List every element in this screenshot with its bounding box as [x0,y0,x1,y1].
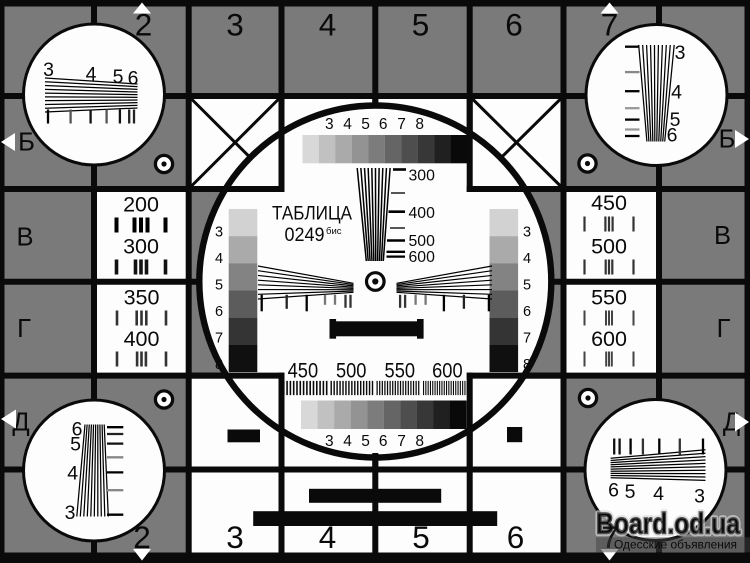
svg-text:300: 300 [409,167,436,184]
svg-text:5: 5 [215,278,223,294]
svg-text:300: 300 [123,235,159,259]
svg-text:5: 5 [523,278,531,294]
svg-text:3: 3 [325,116,334,133]
svg-text:350: 350 [124,286,160,310]
svg-text:ТАБЛИЦА: ТАБЛИЦА [272,203,353,225]
svg-text:4: 4 [653,483,664,505]
svg-text:4: 4 [671,82,682,104]
svg-text:450: 450 [288,359,319,383]
svg-text:8: 8 [415,433,424,450]
svg-text:4: 4 [67,463,78,485]
svg-text:3: 3 [675,42,686,64]
svg-text:4: 4 [215,251,223,267]
svg-text:3: 3 [325,433,334,450]
svg-text:4: 4 [523,251,531,267]
svg-text:4: 4 [319,519,337,555]
svg-text:Г: Г [17,315,31,343]
svg-text:6: 6 [215,304,223,320]
svg-text:5: 5 [113,66,124,88]
svg-text:3: 3 [65,502,76,524]
svg-text:400: 400 [409,205,436,222]
svg-text:7: 7 [397,433,406,450]
svg-text:3: 3 [215,225,223,241]
svg-text:5: 5 [412,7,430,43]
svg-text:8: 8 [523,357,531,373]
svg-text:200: 200 [123,193,159,217]
svg-text:Г: Г [717,315,731,343]
svg-text:В: В [714,222,731,250]
svg-text:бис: бис [326,226,342,237]
svg-text:4: 4 [86,64,97,86]
svg-text:7: 7 [397,116,406,133]
svg-text:6: 6 [379,433,388,450]
svg-text:400: 400 [124,327,160,351]
svg-text:550: 550 [385,359,416,383]
svg-text:5: 5 [361,433,370,450]
svg-text:4: 4 [319,7,337,43]
svg-text:7: 7 [215,331,223,347]
svg-text:5: 5 [625,481,636,503]
svg-text:600: 600 [409,249,436,266]
svg-text:Одесские объявления: Одесские объявления [614,538,737,552]
svg-text:7: 7 [523,331,531,347]
svg-text:3: 3 [226,7,244,43]
svg-text:5: 5 [361,116,370,133]
svg-text:Б: Б [719,126,736,154]
svg-text:3: 3 [43,59,54,81]
svg-text:600: 600 [432,359,463,383]
svg-text:6: 6 [379,116,388,133]
svg-text:8: 8 [415,116,424,133]
svg-text:6: 6 [667,125,678,147]
svg-text:6: 6 [128,68,139,90]
svg-text:550: 550 [591,286,627,310]
svg-text:500: 500 [591,235,627,259]
svg-text:5: 5 [412,519,430,555]
svg-text:3: 3 [694,486,705,508]
svg-text:6: 6 [608,480,619,502]
svg-text:500: 500 [409,233,436,250]
svg-text:5: 5 [70,434,81,456]
svg-text:6: 6 [523,304,531,320]
svg-text:6: 6 [505,7,523,43]
svg-text:500: 500 [336,359,367,383]
svg-text:600: 600 [591,327,627,351]
svg-text:8: 8 [215,357,223,373]
svg-text:Б: Б [18,129,35,157]
svg-text:450: 450 [591,191,627,215]
svg-text:4: 4 [343,433,352,450]
svg-text:6: 6 [507,519,525,555]
svg-text:3: 3 [226,519,244,555]
svg-text:3: 3 [523,225,531,241]
svg-text:0249: 0249 [285,224,325,246]
svg-text:В: В [16,224,33,252]
svg-text:4: 4 [343,116,352,133]
